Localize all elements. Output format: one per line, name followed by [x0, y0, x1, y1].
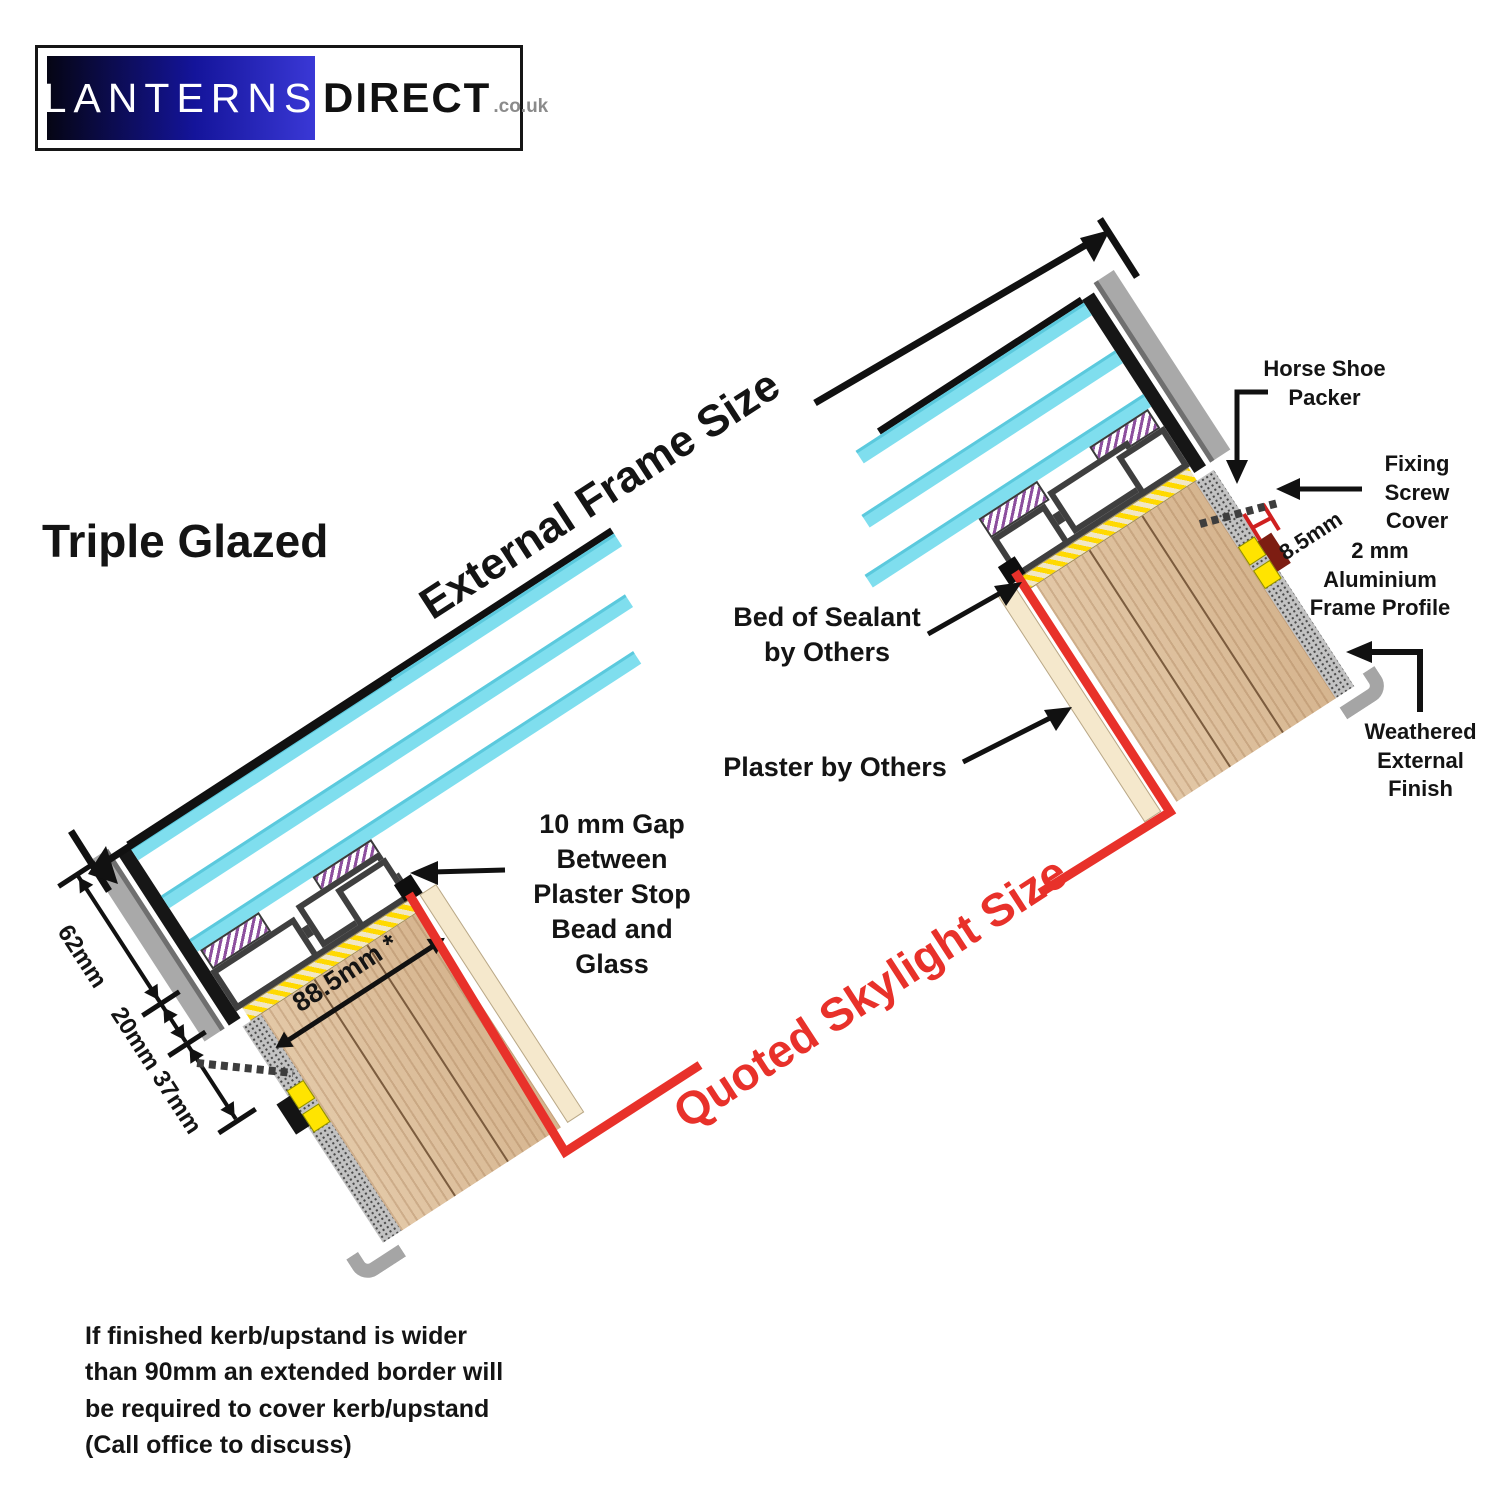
gap-note-label: 10 mm Gap Between Plaster Stop Bead and … — [522, 807, 702, 982]
bed-of-sealant-label: Bed of Sealant by Others — [727, 600, 927, 670]
logo-domain-suffix: .co.uk — [493, 96, 548, 118]
logo-brand-primary: LANTERNS — [44, 75, 319, 122]
glass-pane-outer — [856, 303, 1092, 464]
logo-wordmark: DIRECT .co.uk — [323, 74, 548, 122]
plaster-by-others-label: Plaster by Others — [710, 750, 960, 785]
screw-cover-arrowhead — [1276, 478, 1300, 500]
glass-top-trim — [877, 297, 1084, 435]
logo-brand-secondary: DIRECT — [323, 74, 491, 122]
logo-blue-panel: LANTERNS — [47, 56, 315, 140]
weathering-drip-hook — [346, 1231, 406, 1284]
frame-size-arrowhead-right — [1080, 230, 1110, 262]
diagram-page: LANTERNS DIRECT .co.uk Triple Glazed — [0, 0, 1500, 1500]
page-title: Triple Glazed — [42, 512, 362, 572]
lanterns-direct-logo: LANTERNS DIRECT .co.uk — [35, 45, 523, 151]
weathered-external-finish-label: Weathered External Finish — [1348, 718, 1493, 804]
kerb-width-footnote: If finished kerb/upstand is wider than 9… — [85, 1318, 525, 1463]
glass-top-trim — [126, 528, 614, 848]
aluminium-frame-profile-label: 2 mm Aluminium Frame Profile — [1295, 537, 1465, 623]
horse-shoe-packer-label: Horse Shoe Packer — [1262, 355, 1387, 412]
fixing-screw-cover-label: Fixing Screw Cover — [1372, 450, 1462, 536]
